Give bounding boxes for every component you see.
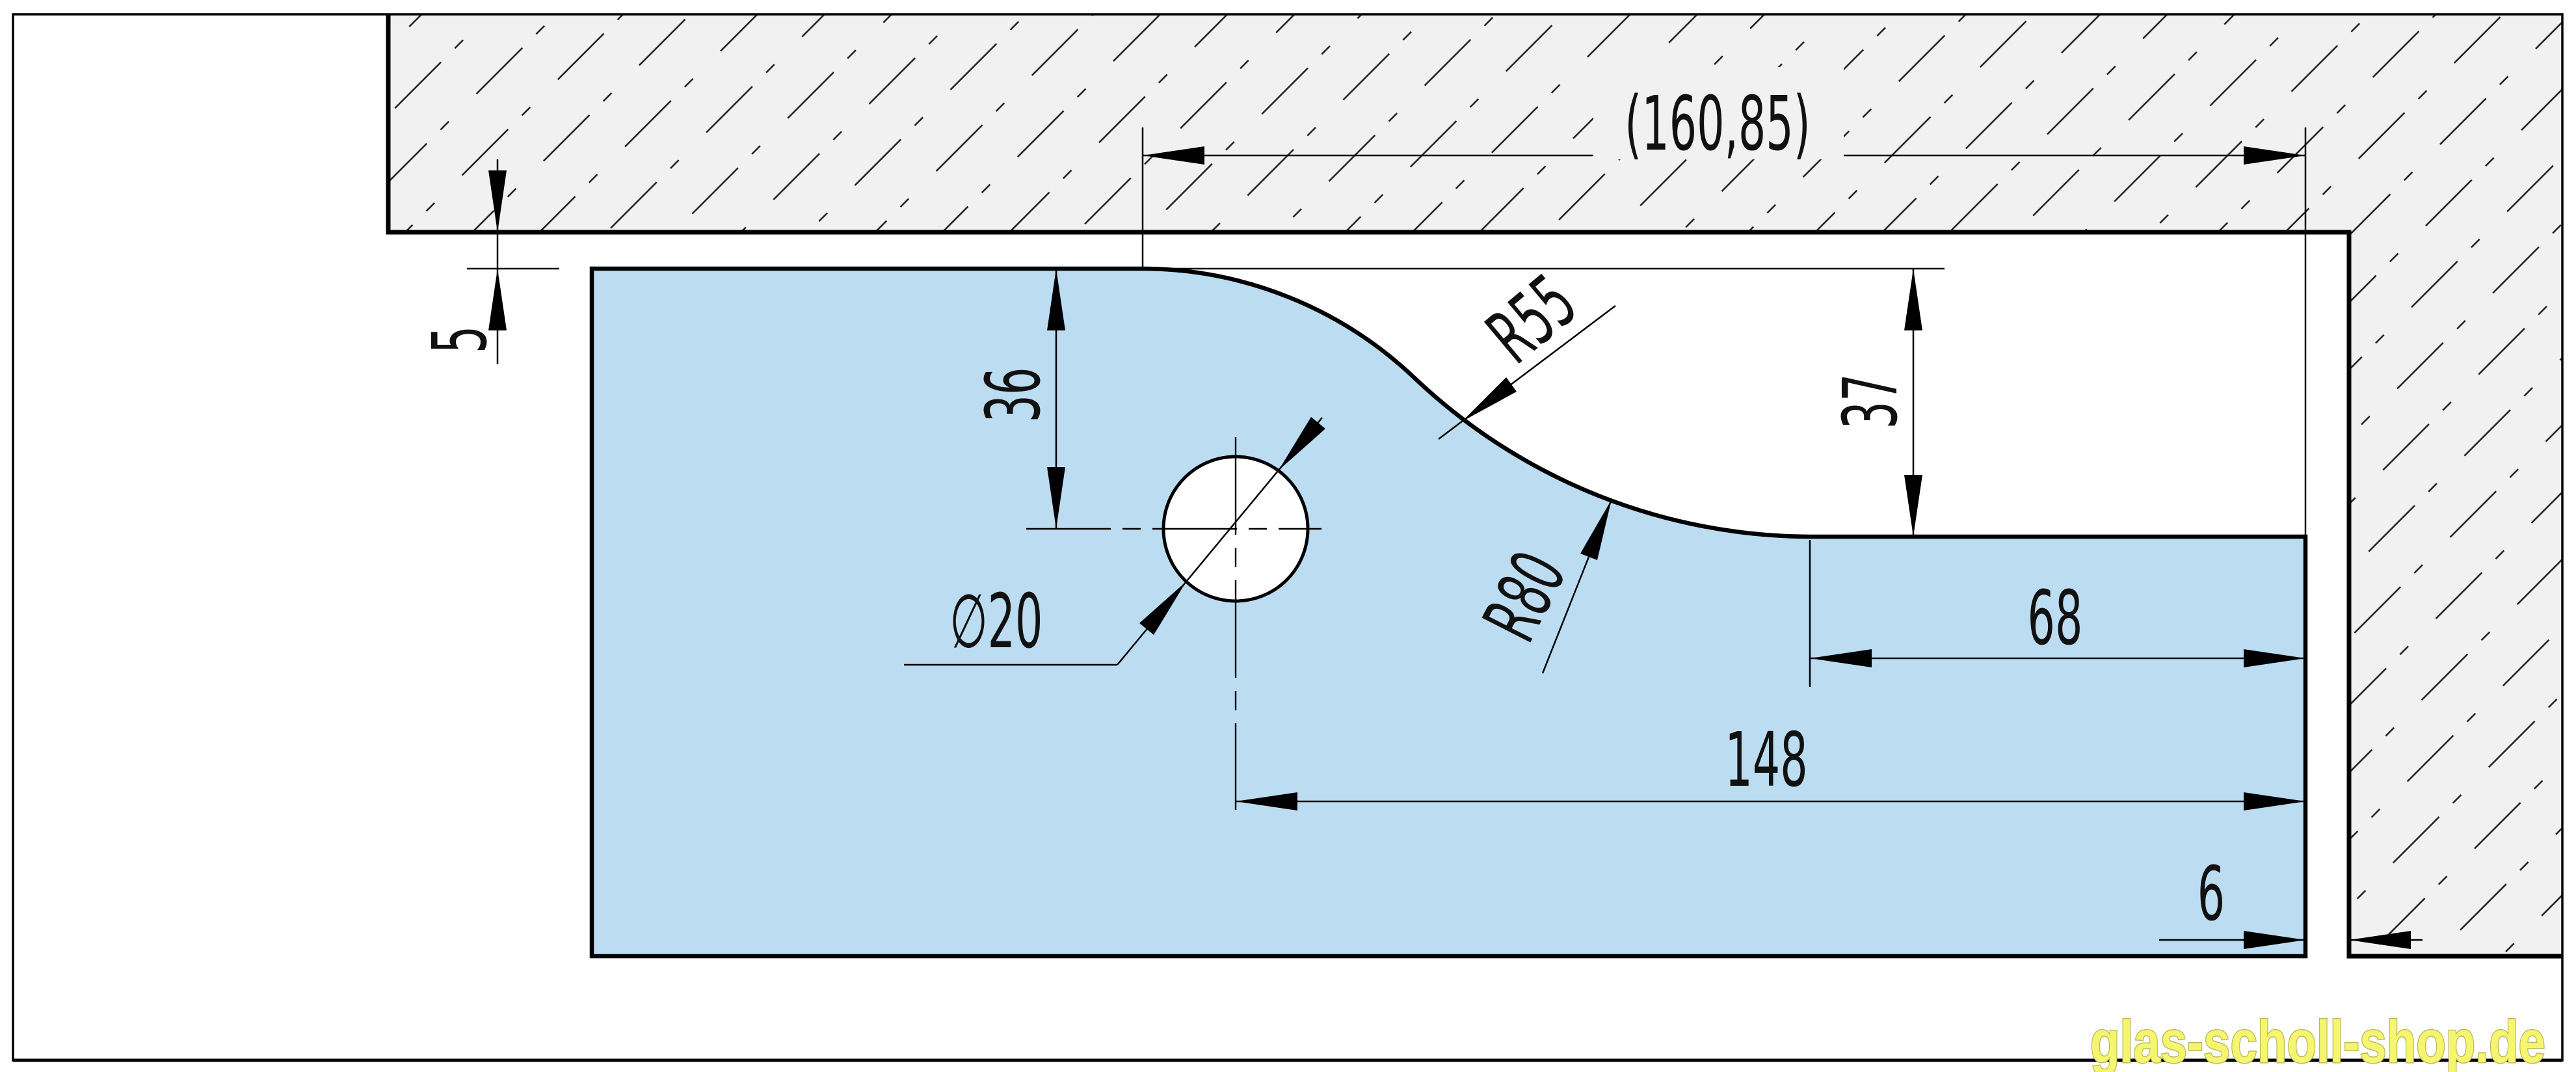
dim-label-right-gap: 6	[2198, 851, 2225, 938]
technical-drawing-canvas: (160,85) 5 36 37 R55 R80 ∅20 68 148 6 gl…	[0, 0, 2576, 1072]
dim-cutout-depth-arrow-top	[1904, 269, 1922, 330]
dim-label-shelf-width: 68	[2028, 576, 2083, 662]
dim-label-hole-diameter: ∅20	[950, 579, 1043, 665]
dim-label-top-gap: 5	[418, 326, 504, 353]
dim-top-gap-arrow-lower	[488, 269, 507, 330]
dim-label-hole-offset: 36	[971, 368, 1057, 423]
dim-label-overall-width: (160,85)	[1625, 81, 1810, 168]
watermark: glas-scholl-shop.de	[2090, 1009, 2545, 1072]
drawing-svg: (160,85) 5 36 37 R55 R80 ∅20 68 148 6 gl…	[0, 0, 2576, 1072]
leader-r55-arrow	[1462, 377, 1517, 422]
dim-cutout-depth-arrow-bottom	[1904, 475, 1922, 537]
dim-label-hole-right: 148	[1725, 717, 1807, 804]
dim-label-upper-radius: R55	[1472, 259, 1593, 380]
dim-label-cutout-depth: 37	[1828, 374, 1915, 429]
